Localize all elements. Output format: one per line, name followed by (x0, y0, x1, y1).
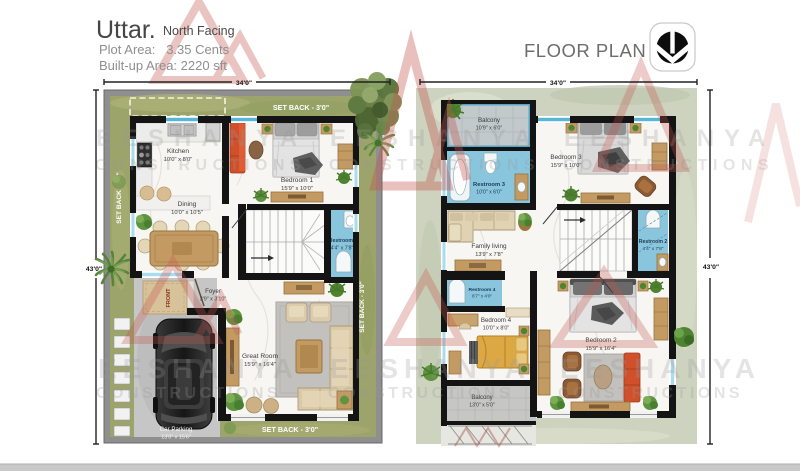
svg-text:FLOOR PLAN: FLOOR PLAN (524, 40, 646, 61)
svg-text:10'0" x 8'0": 10'0" x 8'0" (483, 326, 510, 332)
svg-text:Balcony: Balcony (478, 117, 501, 124)
svg-text:Bedroom 4: Bedroom 4 (481, 317, 512, 324)
svg-text:43'0": 43'0" (703, 264, 719, 271)
svg-text:EESHANYA: EESHANYA (96, 125, 307, 152)
svg-text:15'9" x 10'0": 15'9" x 10'0" (281, 186, 313, 192)
svg-text:43'0": 43'0" (86, 266, 102, 273)
svg-text:Family living: Family living (471, 243, 507, 250)
svg-text:4'4" x 7'8": 4'4" x 7'8" (331, 246, 354, 252)
svg-text:EESHANYA: EESHANYA (98, 353, 299, 384)
svg-text:CONSTRUCTIONS: CONSTRUCTIONS (95, 157, 306, 174)
svg-text:CONSTRUCTIONS: CONSTRUCTIONS (558, 385, 743, 402)
svg-text:Restroom 4: Restroom 4 (469, 287, 496, 293)
svg-text:13'0" x 15'6": 13'0" x 15'6" (161, 435, 191, 441)
svg-text:13'0" x 5'0": 13'0" x 5'0" (469, 403, 495, 409)
svg-text:4'4" x 7'8": 4'4" x 7'8" (643, 246, 664, 252)
svg-text:CONSTRUCTIONS: CONSTRUCTIONS (328, 385, 513, 402)
svg-text:Bedroom 1: Bedroom 1 (281, 177, 314, 184)
svg-text:SET BACK - 3'0": SET BACK - 3'0" (359, 281, 366, 333)
svg-text:Restroom 3: Restroom 3 (473, 182, 506, 188)
svg-text:North Facing: North Facing (163, 24, 235, 38)
svg-text:10'0" x 10'5": 10'0" x 10'5" (171, 210, 203, 216)
svg-text:Dining: Dining (178, 201, 197, 208)
svg-text:34'0": 34'0" (550, 80, 566, 87)
svg-text:10'0" x 6'0": 10'0" x 6'0" (476, 190, 502, 196)
svg-text:6'7" x 4'0": 6'7" x 4'0" (472, 294, 492, 299)
svg-text:Car Parking: Car Parking (160, 426, 193, 433)
svg-text:34'0": 34'0" (236, 80, 252, 87)
svg-text:SET BACK - 3'0": SET BACK - 3'0" (262, 425, 318, 434)
svg-text:SET BACK - 3'0": SET BACK - 3'0" (273, 103, 329, 112)
svg-text:Restroom 2: Restroom 2 (639, 239, 668, 245)
svg-text:13'9" x 7'8": 13'9" x 7'8" (475, 252, 503, 258)
svg-text:EESHANYA: EESHANYA (560, 353, 761, 384)
svg-text:Built-up Area: 2220 sft: Built-up Area: 2220 sft (99, 58, 227, 73)
svg-text:Plot Area: 3.35 Cents: Plot Area: 3.35 Cents (99, 42, 230, 57)
svg-text:CONSTRUCTIONS: CONSTRUCTIONS (96, 385, 281, 402)
svg-text:EESHANYA: EESHANYA (330, 353, 531, 384)
svg-text:Uttar.: Uttar. (96, 16, 156, 44)
svg-text:FRONT: FRONT (166, 288, 172, 308)
